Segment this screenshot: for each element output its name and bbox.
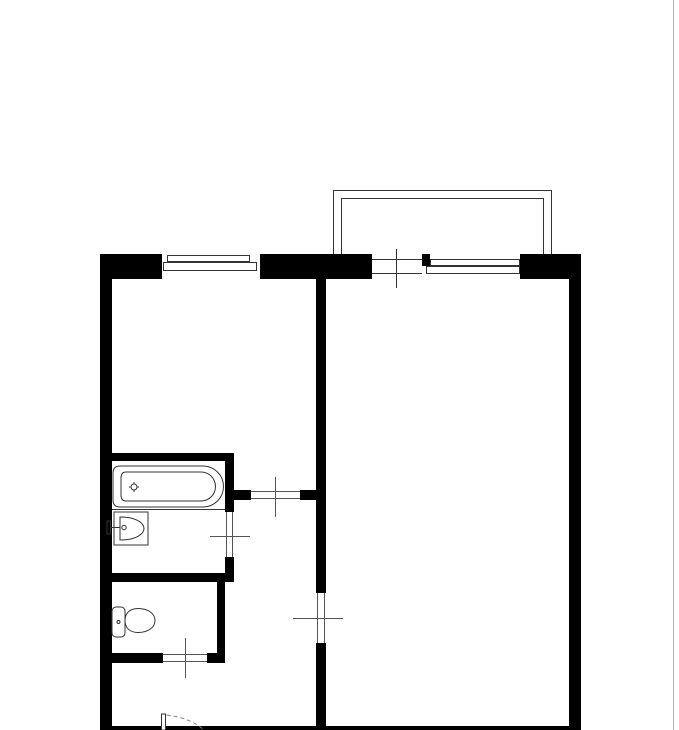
- entrance-door-icon: [155, 705, 225, 730]
- floor-plan: [0, 0, 679, 730]
- bathroom-door-jamb-right: [232, 512, 233, 557]
- left-window-frame-lower: [163, 262, 257, 271]
- wall-top-middle-segment: [260, 254, 372, 279]
- sink-icon: [104, 510, 152, 548]
- balcony-outline-inner: [341, 198, 544, 254]
- bathtub-icon: [112, 464, 227, 511]
- right-window-frame-lower: [426, 266, 520, 274]
- toilet-icon: [108, 603, 160, 643]
- hall-wall-stub-left: [234, 490, 251, 500]
- hall-wall-stub-right: [300, 490, 316, 500]
- wall-right: [569, 279, 581, 730]
- wall-middle-lower: [316, 643, 326, 730]
- wall-top-right-segment: [520, 254, 581, 279]
- toilet-bottom-wall-left: [100, 653, 163, 663]
- toilet-door-cross: [185, 638, 186, 678]
- right-window-frame-upper: [430, 259, 520, 266]
- balcony-door-sill-bottom: [372, 273, 422, 274]
- bathroom-door-cross: [210, 536, 250, 537]
- hall-door-cross: [275, 477, 276, 517]
- balcony-door-sill-top: [372, 259, 422, 260]
- toilet-right-wall: [217, 582, 225, 663]
- bathroom-top-wall: [100, 453, 234, 461]
- wall-top-left-segment: [100, 254, 162, 279]
- bathroom-bottom-wall: [100, 573, 234, 582]
- left-window-frame-upper: [167, 255, 250, 262]
- balcony-door-post: [396, 249, 397, 288]
- page-border-right: [673, 0, 674, 730]
- bathroom-door-jamb-left: [226, 512, 227, 557]
- toilet-bottom-wall-corner: [207, 653, 225, 663]
- window-mullion-block: [422, 254, 430, 266]
- big-room-door-cross: [293, 618, 343, 619]
- wall-middle-upper: [316, 279, 326, 593]
